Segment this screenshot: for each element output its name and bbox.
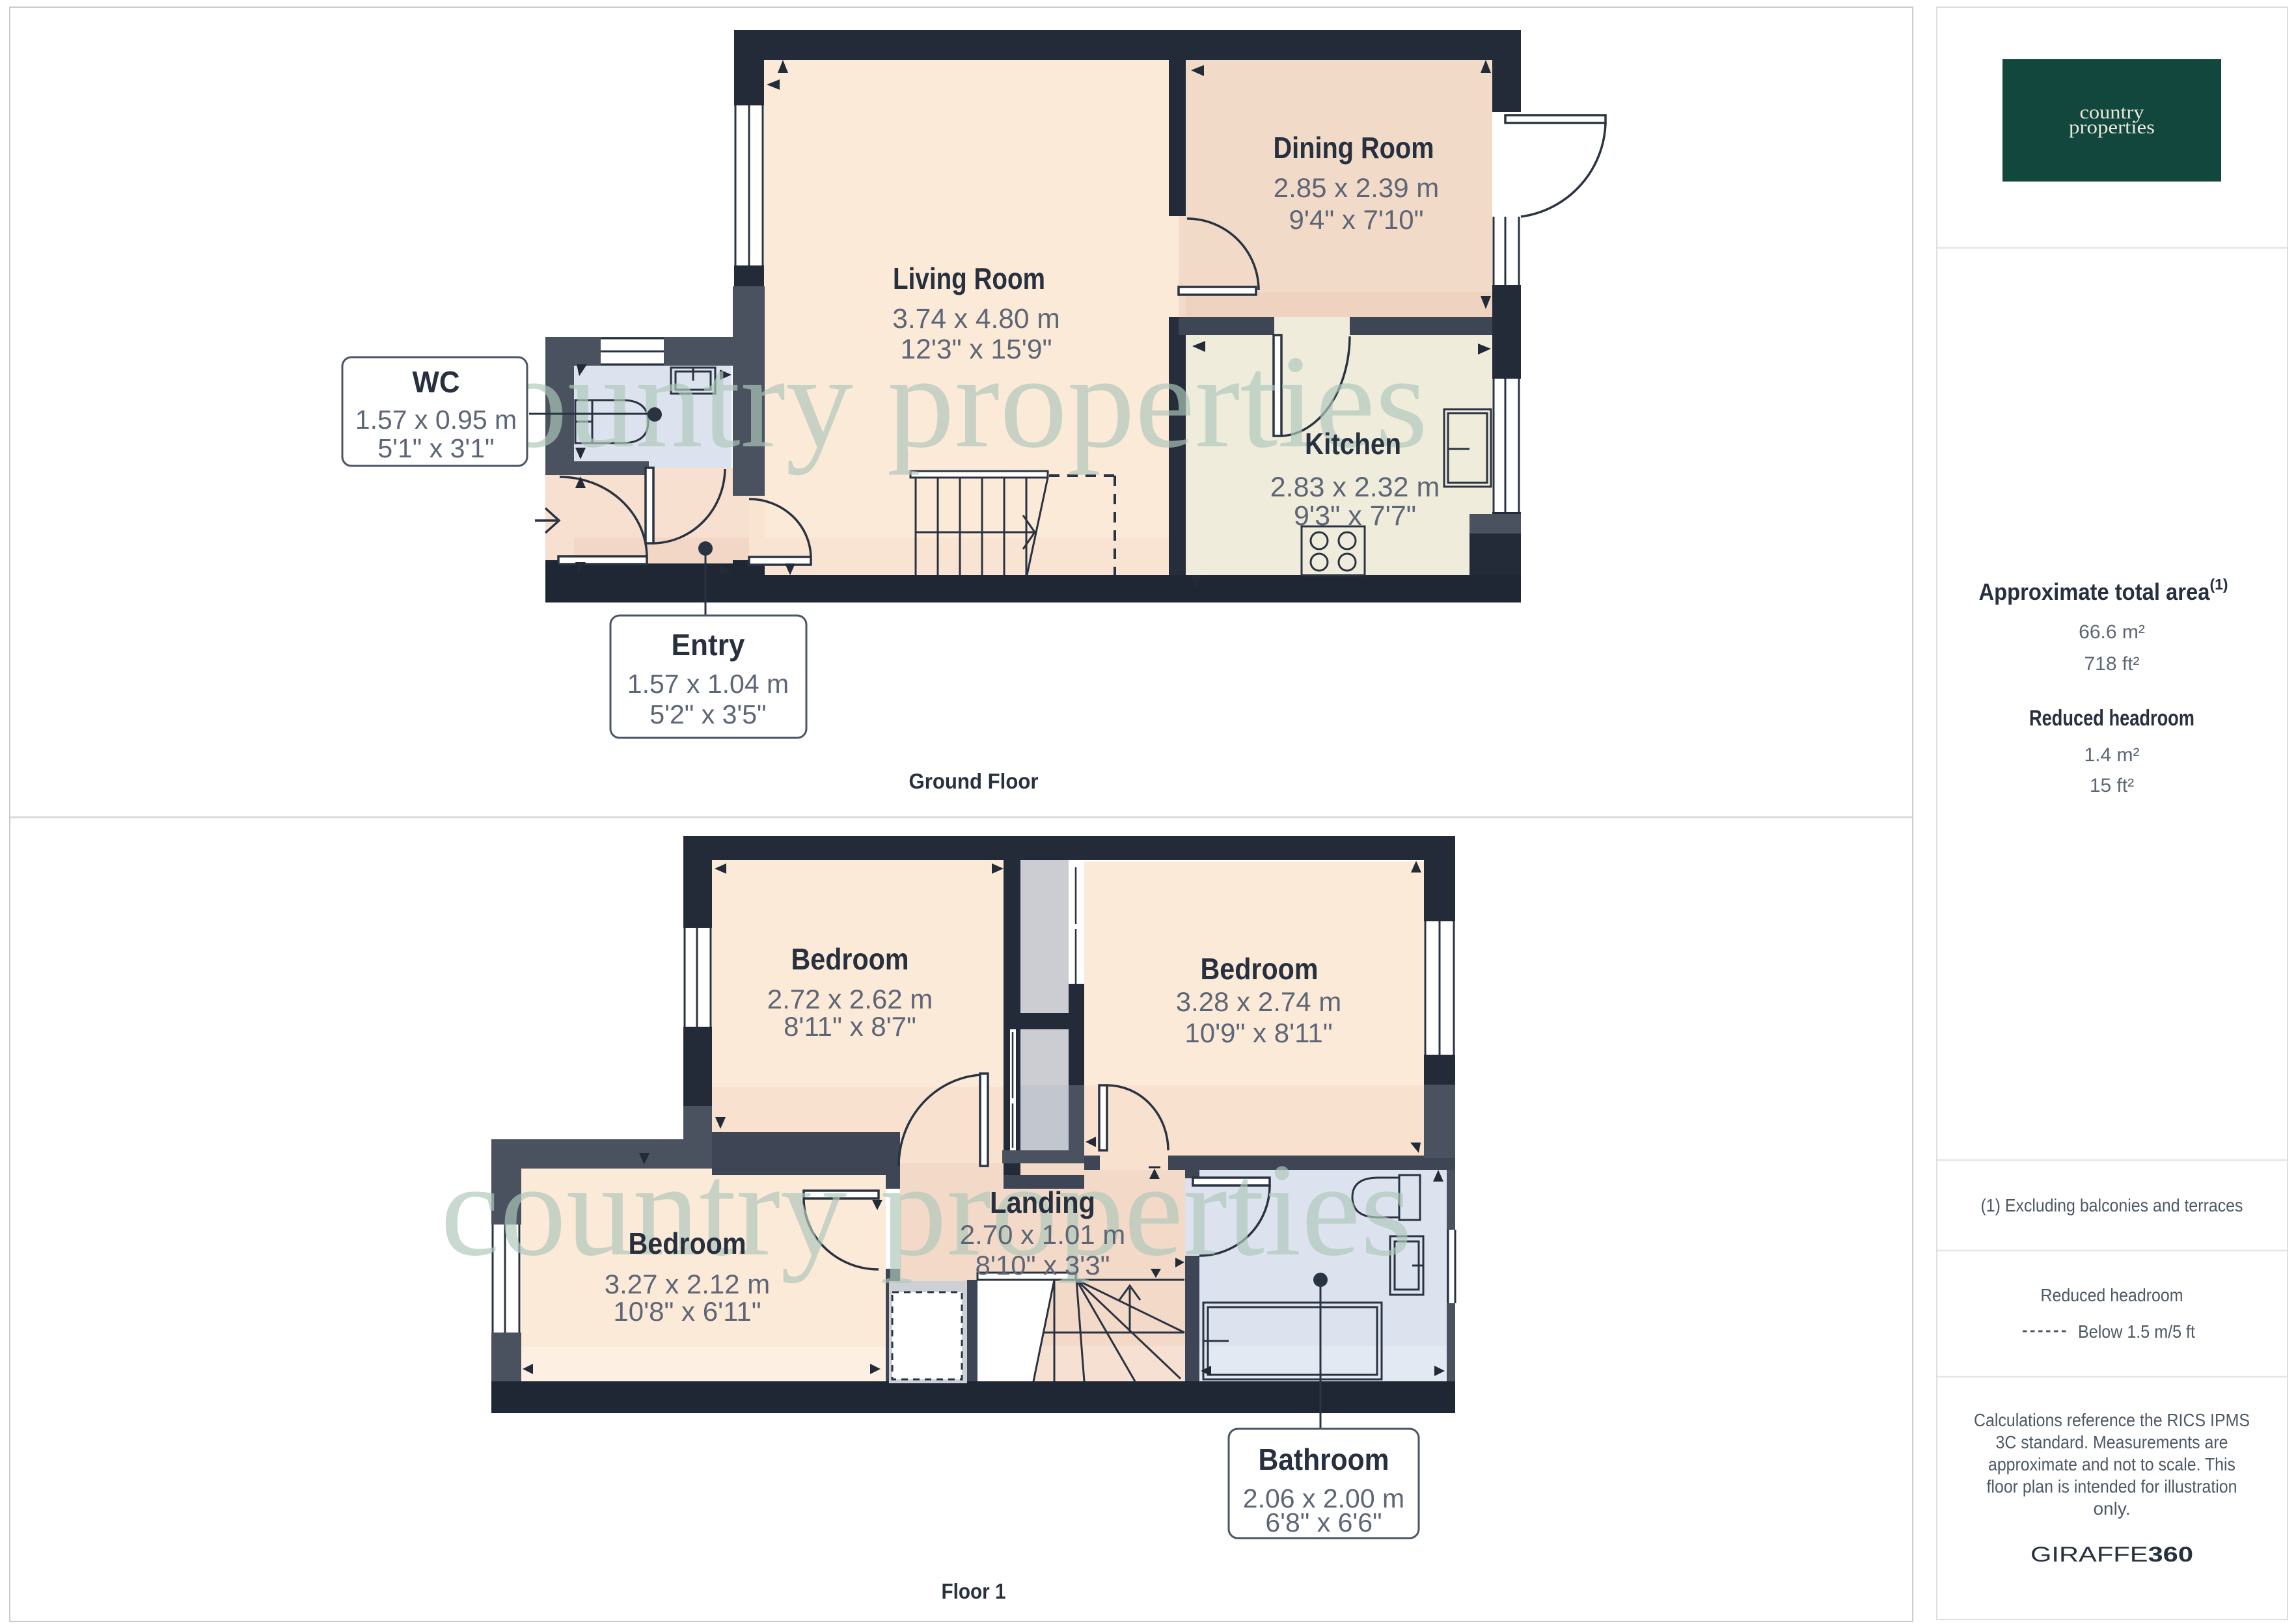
svg-text:Floor 1: Floor 1 bbox=[942, 1579, 1006, 1603]
svg-text:3.27 x 2.12 m: 3.27 x 2.12 m bbox=[605, 1269, 770, 1299]
svg-text:9'4" x 7'10": 9'4" x 7'10" bbox=[1289, 204, 1424, 235]
svg-text:1.57 x 1.04 m: 1.57 x 1.04 m bbox=[627, 669, 789, 699]
svg-text:3C standard. Measurements are: 3C standard. Measurements are bbox=[1996, 1432, 2228, 1452]
svg-text:5'1" x 3'1": 5'1" x 3'1" bbox=[377, 433, 494, 463]
svg-text:WC: WC bbox=[413, 365, 460, 399]
svg-text:GIRAFFE360: GIRAFFE360 bbox=[2030, 1543, 2193, 1566]
svg-text:10'8" x 6'11": 10'8" x 6'11" bbox=[613, 1296, 761, 1327]
svg-text:2.83 x 2.32 m: 2.83 x 2.32 m bbox=[1270, 472, 1440, 503]
svg-text:6'8" x 6'6": 6'8" x 6'6" bbox=[1265, 1508, 1382, 1537]
svg-text:5'2" x 3'5": 5'2" x 3'5" bbox=[649, 699, 766, 729]
svg-text:Entry: Entry bbox=[672, 628, 745, 662]
svg-text:12'3" x 15'9": 12'3" x 15'9" bbox=[900, 334, 1052, 365]
svg-text:2.70 x 1.01 m: 2.70 x 1.01 m bbox=[960, 1219, 1125, 1250]
svg-text:Bedroom: Bedroom bbox=[791, 942, 909, 976]
svg-text:66.6 m²: 66.6 m² bbox=[2079, 621, 2145, 643]
svg-text:Bedroom: Bedroom bbox=[629, 1226, 746, 1260]
svg-text:Living Room: Living Room bbox=[893, 262, 1045, 295]
svg-text:(1) Excluding balconies and te: (1) Excluding balconies and terraces bbox=[1981, 1195, 2243, 1215]
svg-text:Kitchen: Kitchen bbox=[1305, 427, 1401, 461]
svg-text:Bedroom: Bedroom bbox=[1201, 952, 1319, 986]
svg-text:1.4 m²: 1.4 m² bbox=[2084, 744, 2139, 766]
svg-text:8'11" x 8'7": 8'11" x 8'7" bbox=[784, 1011, 916, 1042]
svg-text:3.74 x 4.80 m: 3.74 x 4.80 m bbox=[892, 304, 1060, 334]
svg-text:2.72 x 2.62 m: 2.72 x 2.62 m bbox=[767, 984, 933, 1014]
svg-text:Ground Floor: Ground Floor bbox=[909, 769, 1039, 793]
svg-text:718 ft²: 718 ft² bbox=[2084, 653, 2139, 675]
svg-text:10'9" x 8'11": 10'9" x 8'11" bbox=[1184, 1018, 1332, 1048]
svg-text:properties: properties bbox=[2069, 116, 2155, 138]
svg-text:1.57 x 0.95 m: 1.57 x 0.95 m bbox=[355, 405, 517, 435]
svg-text:Landing: Landing bbox=[990, 1185, 1095, 1219]
svg-text:Reduced headroom: Reduced headroom bbox=[2041, 1285, 2183, 1305]
svg-text:Reduced headroom: Reduced headroom bbox=[2029, 706, 2194, 731]
svg-text:2.85 x 2.39 m: 2.85 x 2.39 m bbox=[1274, 172, 1439, 203]
svg-text:Dining Room: Dining Room bbox=[1274, 131, 1434, 165]
svg-text:Approximate total area(1): Approximate total area(1) bbox=[1978, 576, 2228, 605]
svg-text:Calculations reference the RIC: Calculations reference the RICS IPMS bbox=[1974, 1410, 2250, 1430]
svg-text:approximate and not to scale.: approximate and not to scale. This bbox=[1988, 1454, 2235, 1474]
svg-text:9'3" x 7'7": 9'3" x 7'7" bbox=[1294, 500, 1416, 532]
svg-text:15 ft²: 15 ft² bbox=[2090, 775, 2134, 796]
svg-text:3.28 x 2.74 m: 3.28 x 2.74 m bbox=[1176, 986, 1341, 1017]
svg-text:only.: only. bbox=[2093, 1498, 2130, 1519]
svg-text:floor plan is intended for ill: floor plan is intended for illustration bbox=[1987, 1476, 2237, 1496]
svg-text:8'10" x 3'3": 8'10" x 3'3" bbox=[976, 1250, 1110, 1280]
svg-text:country properties: country properties bbox=[441, 1136, 1412, 1284]
svg-text:Below 1.5 m/5 ft: Below 1.5 m/5 ft bbox=[2078, 1321, 2195, 1342]
svg-text:Bathroom: Bathroom bbox=[1259, 1442, 1389, 1476]
